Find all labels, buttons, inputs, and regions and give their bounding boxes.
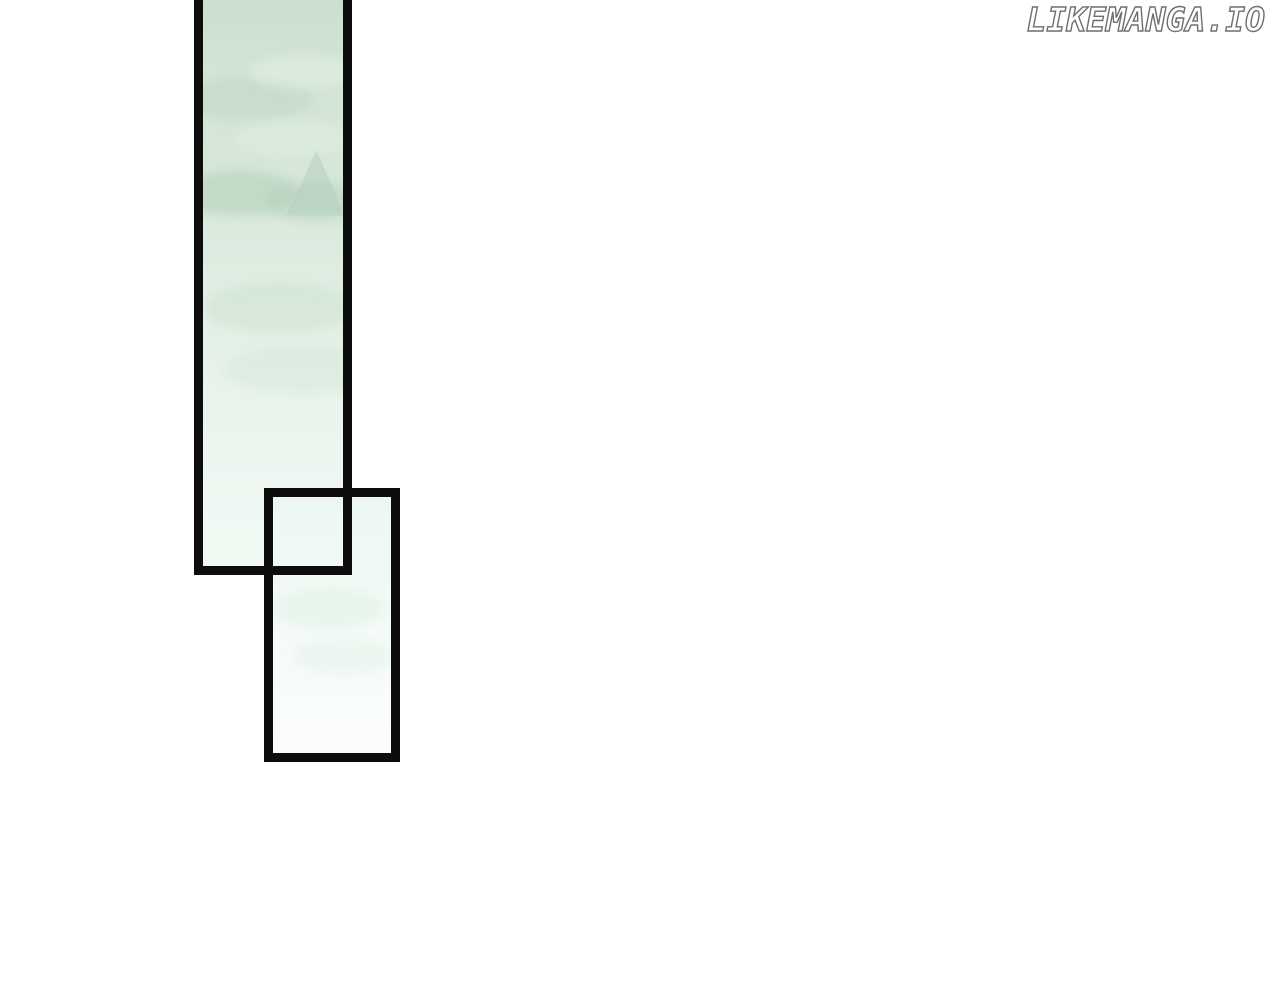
site-watermark: LIKEMANGA.IO <box>1027 3 1265 36</box>
small-panel-border <box>264 488 400 762</box>
manga-page: LIKEMANGA.IO <box>0 0 1280 1000</box>
